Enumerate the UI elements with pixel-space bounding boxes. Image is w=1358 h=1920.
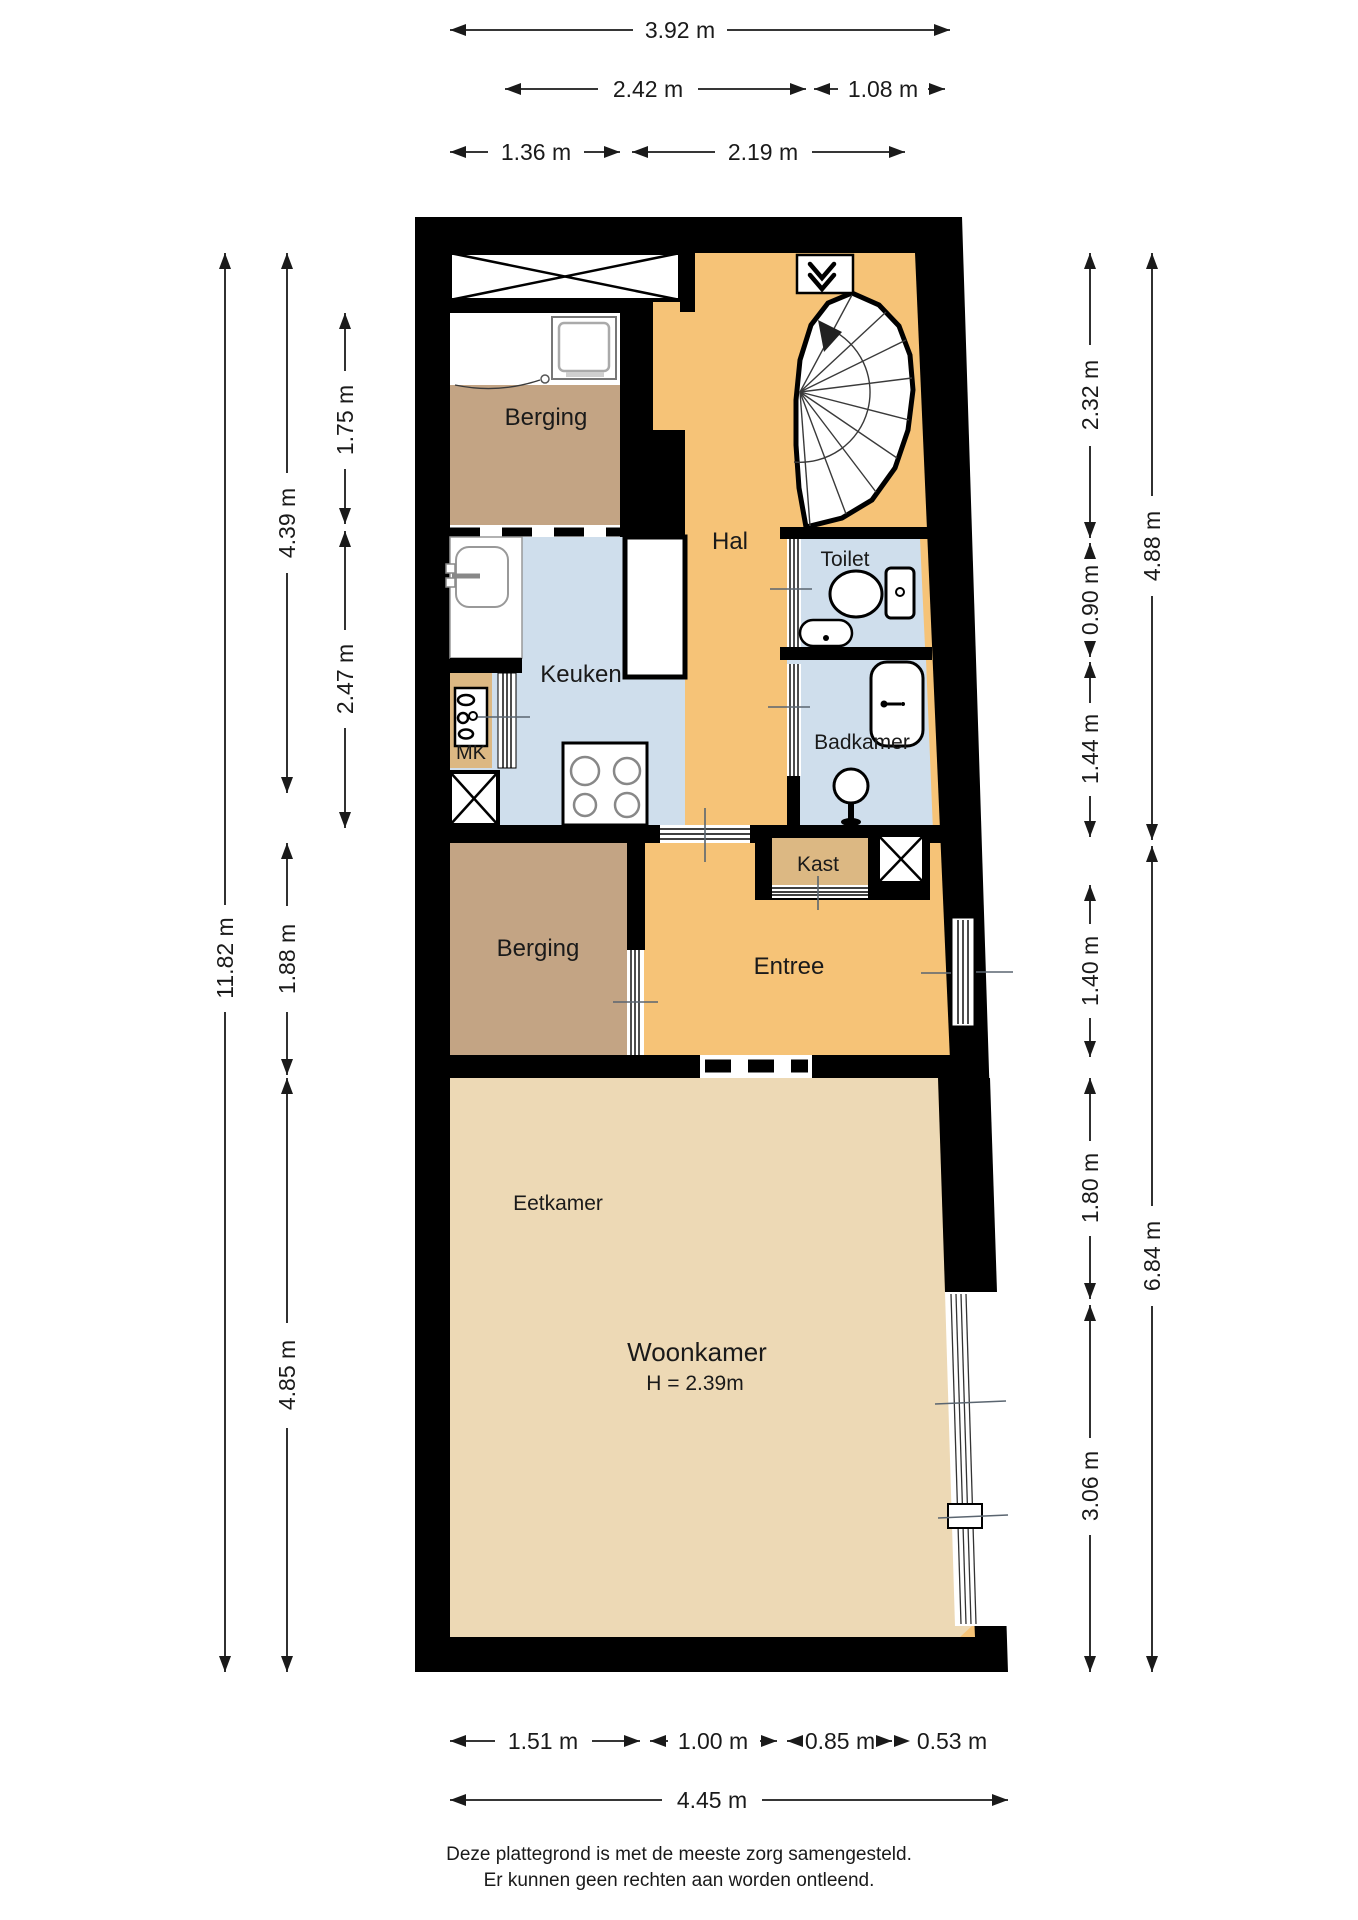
toilet-icon	[830, 568, 914, 618]
svg-text:1.36 m: 1.36 m	[501, 139, 571, 165]
disclaimer-line1: Deze plattegrond is met de meeste zorg s…	[0, 1842, 1358, 1868]
svg-text:1.80 m: 1.80 m	[1077, 1153, 1103, 1223]
dimension-right-2-32: 2.32 m	[1077, 253, 1103, 538]
svg-text:1.88 m: 1.88 m	[274, 924, 300, 994]
svg-text:1.44 m: 1.44 m	[1077, 714, 1103, 784]
dimension-left-11-82: 11.82 m	[212, 253, 238, 1672]
dimension-left-4-39: 4.39 m	[274, 253, 300, 793]
door-hinge	[541, 375, 549, 383]
svg-text:1.75 m: 1.75 m	[332, 385, 358, 455]
wall	[627, 843, 645, 950]
svg-text:0.90 m: 0.90 m	[1077, 565, 1103, 635]
wall	[780, 527, 932, 539]
label-woonkamer-height: H = 2.39m	[646, 1372, 743, 1395]
void-shaft-keuken	[450, 772, 498, 825]
dimension-right-1-40: 1.40 m	[1077, 885, 1103, 1057]
dimension-right-4-88: 4.88 m	[1139, 253, 1165, 840]
label-badkamer: Badkamer	[814, 731, 910, 754]
dimension-right-3-06: 3.06 m	[1077, 1305, 1103, 1672]
label-keuken: Keuken	[540, 661, 621, 688]
wall	[680, 253, 695, 312]
door-kast	[772, 885, 868, 898]
dimension-top-1-36: 1.36 m	[450, 139, 620, 165]
label-mk: MK	[456, 742, 487, 764]
dimension-right-1-80: 1.80 m	[1077, 1078, 1103, 1299]
wall	[787, 776, 800, 831]
label-kast: Kast	[797, 853, 839, 876]
washing-machine-icon	[552, 317, 616, 379]
dimension-bottom-1-00: 1.00 m	[650, 1728, 777, 1754]
dimension-left-1-75: 1.75 m	[332, 313, 358, 524]
label-entree: Entree	[754, 953, 825, 980]
svg-text:2.47 m: 2.47 m	[332, 644, 358, 714]
svg-text:2.32 m: 2.32 m	[1077, 360, 1103, 430]
dimension-bottom-0-85: 0.85 m	[787, 1728, 892, 1754]
dimension-top-1-08: 1.08 m	[814, 76, 945, 102]
hand-basin-icon	[800, 620, 852, 646]
dimension-left-4-85: 4.85 m	[274, 1078, 300, 1672]
void-shaft-top	[450, 253, 680, 300]
wall	[450, 300, 653, 313]
svg-text:0.53 m: 0.53 m	[917, 1728, 987, 1754]
stove-icon	[563, 743, 647, 825]
label-berging: Berging	[497, 935, 580, 962]
wall	[620, 430, 685, 538]
dimension-right-0-90: 0.90 m	[1077, 543, 1103, 657]
window-woonkamer	[945, 1292, 1007, 1626]
front-door	[952, 918, 974, 1026]
dimension-top-2-19: 2.19 m	[632, 139, 905, 165]
svg-text:4.85 m: 4.85 m	[274, 1340, 300, 1410]
svg-text:1.00 m: 1.00 m	[678, 1728, 748, 1754]
kitchen-cabinet	[625, 537, 685, 677]
svg-text:4.45 m: 4.45 m	[677, 1787, 747, 1813]
open-passage-entree-woonkamer	[700, 1055, 812, 1078]
dimension-left-1-88: 1.88 m	[274, 843, 300, 1075]
dimension-top-2-42: 2.42 m	[505, 76, 806, 102]
svg-text:4.39 m: 4.39 m	[274, 488, 300, 558]
svg-text:3.06 m: 3.06 m	[1077, 1451, 1103, 1521]
void-shaft-kast	[878, 835, 924, 883]
door-toilet	[787, 539, 801, 647]
disclaimer-line2: Er kunnen geen rechten aan worden ontlee…	[0, 1868, 1358, 1894]
svg-text:2.19 m: 2.19 m	[728, 139, 798, 165]
floor-plan: Berging Hal Toilet Keuken MK Badkamer Ka…	[0, 0, 1358, 1920]
kitchen-sink	[446, 537, 522, 658]
svg-text:11.82 m: 11.82 m	[212, 917, 238, 998]
svg-text:1.40 m: 1.40 m	[1077, 936, 1103, 1006]
label-berging-top: Berging	[505, 404, 588, 431]
door-mk	[498, 673, 516, 768]
wall	[620, 313, 653, 431]
door-badkamer	[787, 664, 801, 776]
wall	[938, 1078, 997, 1292]
svg-text:3.92 m: 3.92 m	[645, 17, 715, 43]
svg-text:1.08 m: 1.08 m	[848, 76, 918, 102]
label-toilet: Toilet	[820, 548, 869, 571]
wall	[780, 647, 932, 660]
svg-text:2.42 m: 2.42 m	[613, 76, 683, 102]
svg-text:1.51 m: 1.51 m	[508, 1728, 578, 1754]
dimension-bottom-0-53: 0.53 m	[894, 1728, 987, 1754]
stairs-entry-icon	[797, 255, 853, 293]
svg-text:6.84 m: 6.84 m	[1139, 1221, 1165, 1291]
dimension-bottom-4-45: 4.45 m	[450, 1787, 1008, 1813]
label-eetkamer: Eetkamer	[513, 1192, 603, 1215]
dimension-right-6-84: 6.84 m	[1139, 846, 1165, 1672]
dimension-bottom-1-51: 1.51 m	[450, 1728, 640, 1754]
dimension-left-2-47: 2.47 m	[332, 531, 358, 828]
wall	[450, 658, 522, 673]
dimension-right-1-44: 1.44 m	[1077, 662, 1103, 837]
svg-text:4.88 m: 4.88 m	[1139, 511, 1165, 581]
dimension-top-3-92: 3.92 m	[450, 17, 950, 43]
label-woonkamer: Woonkamer	[627, 1337, 767, 1367]
svg-text:0.85 m: 0.85 m	[805, 1728, 875, 1754]
label-hal: Hal	[712, 528, 748, 555]
floorplan-page: Berging Hal Toilet Keuken MK Badkamer Ka…	[0, 0, 1358, 1920]
disclaimer: Deze plattegrond is met de meeste zorg s…	[0, 1842, 1358, 1894]
